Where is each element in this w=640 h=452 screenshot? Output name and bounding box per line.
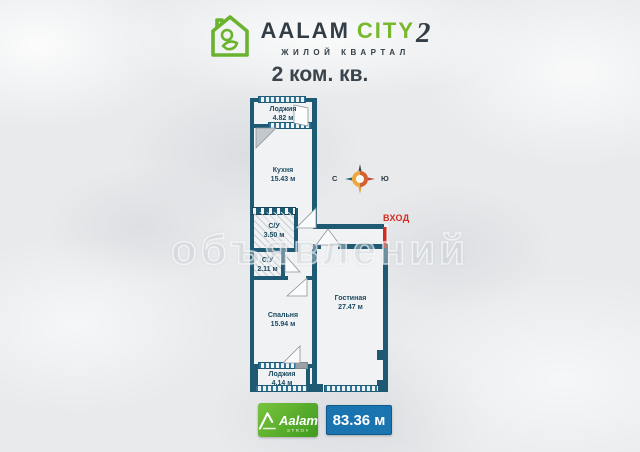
- total-area-badge: 83.36 м: [326, 405, 392, 435]
- builder-badge: Aalam STROY: [258, 403, 318, 437]
- page: AALAM CITY 2 ЖИЛОЙ КВАРТАЛ 2 ком. кв.: [0, 0, 640, 452]
- room-area: 27.47 м: [317, 303, 384, 312]
- room-label-loggia-top: Лоджия 4.82 м: [252, 105, 314, 124]
- door-bedroom: [287, 278, 307, 296]
- builder-logo-icon: [258, 409, 277, 431]
- compass-north-label: С: [332, 174, 337, 183]
- total-area-value: 83.36 м: [333, 412, 386, 429]
- room-area: 15.94 м: [252, 320, 314, 329]
- room-label-kitchen: Кухня 15.43 м: [252, 166, 314, 185]
- logo-house-icon: [209, 13, 251, 59]
- brand-line: AALAM CITY 2: [260, 15, 430, 44]
- room-area: 4.82 м: [252, 114, 314, 123]
- room-area: 15.43 м: [252, 175, 314, 184]
- brand-city: CITY: [357, 20, 415, 42]
- room-area: 4.14 м: [256, 379, 308, 388]
- door-bathroom: [296, 208, 316, 228]
- room-name: Кухня: [252, 166, 314, 175]
- entrance-label: ВХОД: [383, 213, 423, 223]
- room-name: Лоджия: [256, 370, 308, 379]
- door-kitchen-loggia: [256, 128, 276, 148]
- brand-number: 2: [416, 19, 431, 48]
- page-title: 2 ком. кв.: [0, 63, 640, 87]
- door-bedroom-loggia: [283, 346, 300, 363]
- builder-name: Aalam: [279, 414, 318, 427]
- room-label-loggia-bottom: Лоджия 4.14 м: [256, 370, 308, 389]
- brand-subtitle: ЖИЛОЙ КВАРТАЛ: [281, 48, 409, 57]
- compass-icon: [344, 163, 376, 195]
- room-name: Лоджия: [252, 105, 314, 114]
- compass-south-label: Ю: [381, 174, 389, 183]
- brand-name: AALAM: [260, 20, 349, 42]
- brand-text: AALAM CITY 2 ЖИЛОЙ КВАРТАЛ: [260, 15, 430, 57]
- room-name: Спальня: [252, 311, 314, 320]
- room-label-living: Гостиная 27.47 м: [317, 294, 384, 313]
- room-label-bedroom: Спальня 15.94 м: [252, 311, 314, 330]
- watermark: объявлений: [100, 226, 540, 274]
- room-name: Гостиная: [317, 294, 384, 303]
- builder-subtitle: STROY: [287, 428, 310, 433]
- brand-logo: AALAM CITY 2 ЖИЛОЙ КВАРТАЛ: [0, 13, 640, 59]
